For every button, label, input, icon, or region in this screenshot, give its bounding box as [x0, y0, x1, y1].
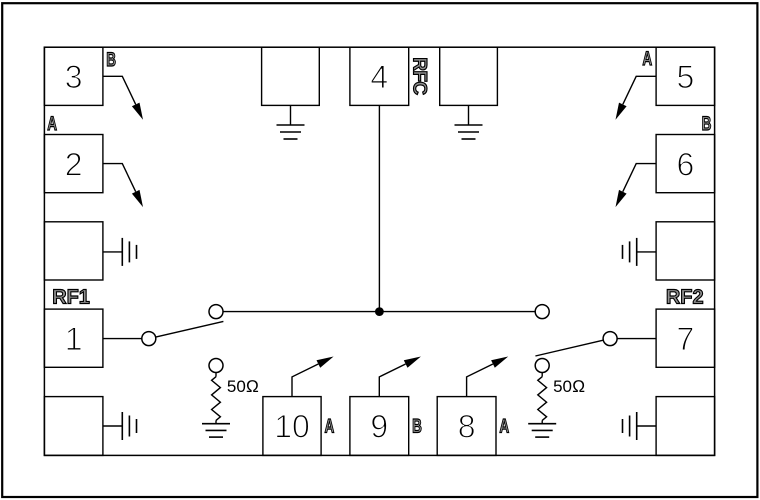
svg-text:9: 9: [370, 409, 388, 445]
svg-text:5: 5: [677, 59, 695, 95]
svg-text:RFC: RFC: [408, 57, 429, 95]
svg-text:4: 4: [370, 59, 388, 95]
svg-text:10: 10: [274, 409, 310, 445]
svg-text:A: A: [325, 417, 335, 438]
svg-text:A: A: [642, 49, 652, 70]
svg-text:RF1: RF1: [52, 285, 90, 308]
svg-text:RF2: RF2: [666, 286, 704, 309]
svg-text:7: 7: [677, 321, 695, 357]
svg-text:B: B: [702, 114, 712, 135]
svg-text:3: 3: [65, 59, 83, 95]
svg-text:50Ω: 50Ω: [553, 377, 585, 396]
svg-text:A: A: [47, 114, 57, 135]
svg-text:B: B: [412, 417, 422, 438]
svg-text:1: 1: [65, 321, 83, 357]
svg-text:A: A: [499, 417, 509, 438]
svg-text:6: 6: [677, 146, 695, 182]
svg-text:8: 8: [458, 409, 476, 445]
svg-text:50Ω: 50Ω: [227, 377, 259, 396]
svg-text:B: B: [106, 50, 116, 71]
svg-text:2: 2: [65, 146, 83, 182]
